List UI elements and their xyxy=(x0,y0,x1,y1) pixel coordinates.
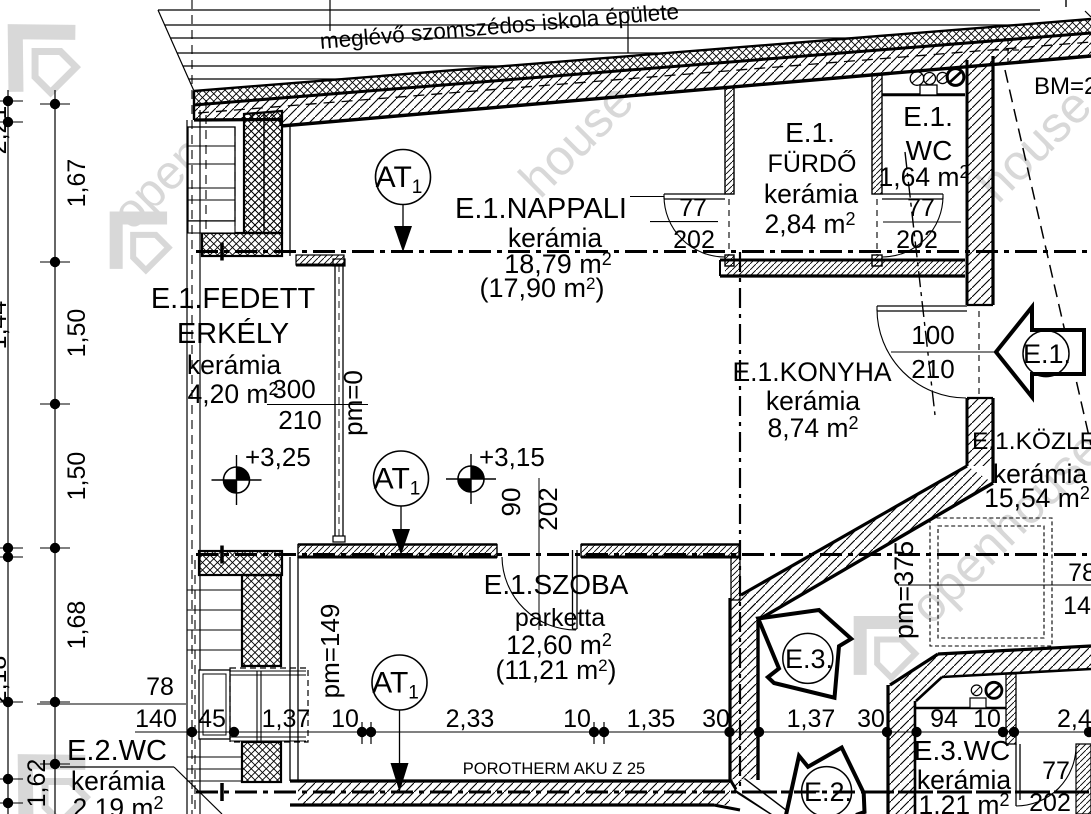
svg-text:202: 202 xyxy=(673,226,715,254)
svg-text:E.1.KONYHA: E.1.KONYHA xyxy=(732,357,891,387)
svg-text:210: 210 xyxy=(278,405,321,435)
svg-text:100: 100 xyxy=(911,320,954,350)
svg-text:E.1.: E.1. xyxy=(785,117,835,148)
svg-text:2,18: 2,18 xyxy=(0,656,12,705)
svg-text:kerámia: kerámia xyxy=(187,350,282,380)
svg-text:1,67: 1,67 xyxy=(63,159,91,208)
svg-text:77: 77 xyxy=(907,194,935,222)
svg-text:1,21 m2: 1,21 m2 xyxy=(918,790,1009,814)
svg-text:POROTHERM AKU Z 25: POROTHERM AKU Z 25 xyxy=(463,760,645,778)
svg-text:78: 78 xyxy=(1068,559,1091,587)
svg-text:E.1.SZOBA: E.1.SZOBA xyxy=(484,569,629,600)
svg-text:202: 202 xyxy=(896,226,938,254)
svg-text:E.3.: E.3. xyxy=(785,644,833,674)
svg-text:77: 77 xyxy=(1042,757,1070,785)
svg-text:1,37: 1,37 xyxy=(787,705,836,733)
svg-text:1,62: 1,62 xyxy=(23,759,51,808)
svg-text:E.2.WC: E.2.WC xyxy=(67,735,167,767)
svg-text:2,4: 2,4 xyxy=(1057,705,1091,733)
svg-text:+3,15: +3,15 xyxy=(479,442,545,472)
svg-text:210: 210 xyxy=(911,354,954,384)
svg-text:ERKÉLY: ERKÉLY xyxy=(177,317,289,350)
svg-text:E.1.NAPPALI: E.1.NAPPALI xyxy=(455,193,627,225)
svg-text:2,84 m2: 2,84 m2 xyxy=(764,209,855,239)
svg-text:E.1.KÖZLE: E.1.KÖZLE xyxy=(972,428,1091,455)
svg-text:15,54 m2: 15,54 m2 xyxy=(984,483,1090,513)
svg-text:E.1.FEDETT: E.1.FEDETT xyxy=(151,283,316,315)
svg-text:1,64 m2: 1,64 m2 xyxy=(878,162,969,192)
svg-text:8,74 m2: 8,74 m2 xyxy=(767,413,858,443)
svg-text:94: 94 xyxy=(930,705,958,733)
svg-text:1,35: 1,35 xyxy=(627,705,676,733)
svg-text:10: 10 xyxy=(331,705,359,733)
svg-text:E.1.: E.1. xyxy=(903,101,953,132)
svg-text:FÜRDŐ: FÜRDŐ xyxy=(768,149,857,178)
svg-text:140: 140 xyxy=(135,705,177,733)
svg-text:1,50: 1,50 xyxy=(63,452,91,501)
svg-text:BM=2,9: BM=2,9 xyxy=(1034,73,1091,100)
svg-text:45: 45 xyxy=(198,705,226,733)
svg-text:2,19 m2: 2,19 m2 xyxy=(72,793,163,814)
svg-text:1,68: 1,68 xyxy=(63,601,91,650)
svg-text:14: 14 xyxy=(1063,592,1091,620)
svg-text:1,50: 1,50 xyxy=(63,309,91,358)
svg-text:kerámia: kerámia xyxy=(764,179,859,209)
svg-text:30: 30 xyxy=(857,705,885,733)
svg-text:+3,25: +3,25 xyxy=(245,442,311,472)
svg-text:30: 30 xyxy=(702,705,730,733)
svg-text:(17,90 m2): (17,90 m2) xyxy=(479,273,604,303)
svg-text:90: 90 xyxy=(496,488,526,517)
svg-text:10: 10 xyxy=(973,705,1001,733)
svg-text:77: 77 xyxy=(679,194,707,222)
svg-text:E.1.: E.1. xyxy=(1023,339,1071,369)
svg-text:10: 10 xyxy=(563,705,591,733)
svg-text:parketta: parketta xyxy=(515,604,605,632)
svg-text:kerámia: kerámia xyxy=(766,386,861,416)
svg-text:pm=0: pm=0 xyxy=(338,370,368,436)
svg-text:202: 202 xyxy=(533,487,563,530)
svg-text:E.3.WC: E.3.WC xyxy=(914,735,1010,766)
svg-text:pm=149: pm=149 xyxy=(315,604,345,699)
svg-text:2,21: 2,21 xyxy=(0,106,12,155)
svg-text:1,44: 1,44 xyxy=(0,301,12,350)
svg-text:4,20 m2: 4,20 m2 xyxy=(187,379,278,409)
svg-text:1,37: 1,37 xyxy=(262,705,311,733)
svg-text:2,33: 2,33 xyxy=(446,705,495,733)
svg-text:78: 78 xyxy=(146,673,174,701)
svg-text:kerámia: kerámia xyxy=(71,766,166,796)
